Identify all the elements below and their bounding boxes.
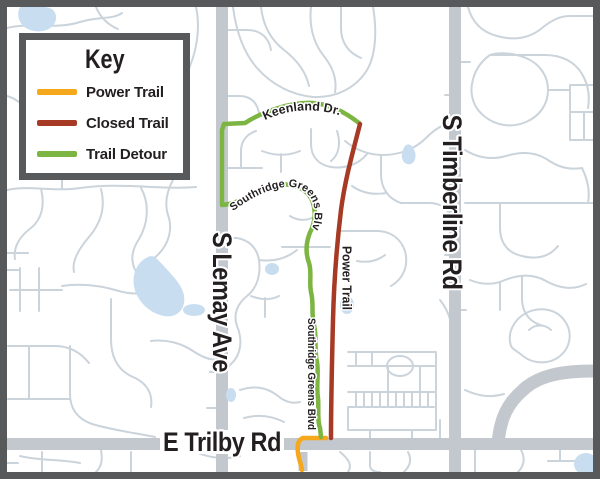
pond [183, 304, 205, 316]
pond [18, 7, 56, 31]
label-lemay: S Lemay Ave [207, 232, 237, 372]
label-timberline: S Timberline Rd [437, 115, 467, 290]
closed-trail-swatch [37, 120, 77, 126]
key-box: Key Power Trail Closed Trail Trail Detou… [19, 33, 190, 180]
minor-streets-north-center [222, 7, 455, 172]
key-item-label: Power Trail [86, 84, 164, 101]
trail-detour-swatch-line [37, 151, 77, 157]
pond [134, 256, 185, 316]
power-trail-swatch [37, 89, 77, 95]
closed-trail-swatch-line [37, 120, 77, 126]
key-item-label: Closed Trail [86, 115, 169, 132]
label-power-trail: Power Trail [340, 246, 355, 310]
label-trilby: E Trilby Rd [163, 427, 281, 457]
key-item-power-trail: Power Trail [37, 84, 164, 100]
trails [222, 103, 360, 470]
minor-streets-center-east [340, 155, 452, 444]
trail-detour-map: S Lemay Ave S Timberline Rd E Trilby Rd … [0, 0, 600, 479]
trail-detour-swatch [37, 151, 77, 157]
road-connector [498, 371, 593, 444]
key-item-trail-detour: Trail Detour [37, 146, 167, 162]
pond [265, 263, 279, 275]
label-keenland: Keenland Dr. [260, 99, 342, 123]
key-item-label: Trail Detour [86, 146, 167, 163]
power-trail-swatch-line [37, 89, 77, 95]
key-title: Key [26, 45, 183, 75]
key-item-closed-trail: Closed Trail [37, 115, 169, 131]
label-southridge-lower: Southridge Greens Blvd [305, 318, 317, 430]
pond [226, 388, 236, 402]
